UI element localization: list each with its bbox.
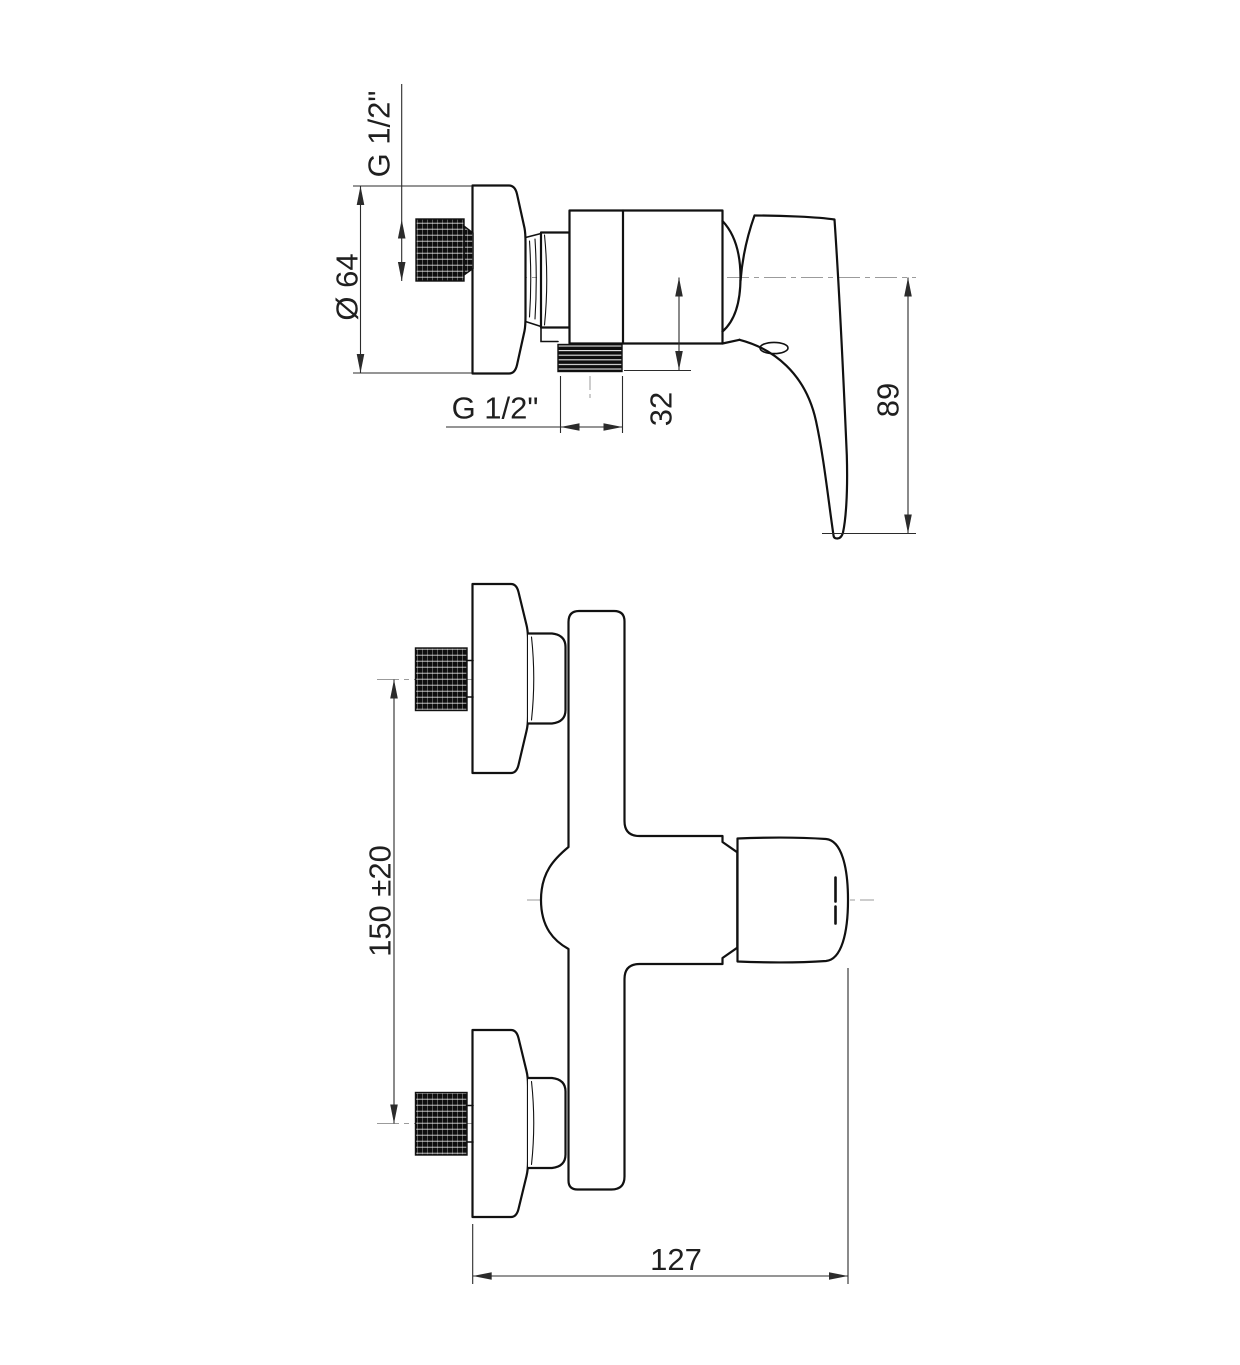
overall-width-label: 127: [650, 1242, 702, 1277]
escutcheon-diameter-label: Ø 64: [330, 253, 365, 320]
drawing-sheet: Ø 64 G 1/2" G 1/2" 32 89: [0, 0, 1240, 1365]
centres-label: 150 ±20: [363, 845, 398, 957]
dimension-inlet-thread: G 1/2": [362, 84, 406, 281]
wall-escutcheon: [473, 186, 526, 374]
lower-knurled-nut: [416, 1093, 468, 1156]
side-view: Ø 64 G 1/2" G 1/2" 32 89: [330, 84, 917, 538]
body-step: [541, 328, 558, 342]
valve-body: [570, 211, 723, 344]
outlet-thread-label: G 1/2": [452, 391, 539, 426]
dimension-handle-drop: 89: [822, 278, 916, 534]
technical-drawing: Ø 64 G 1/2" G 1/2" 32 89: [0, 0, 1240, 1365]
body-lever-link: [723, 340, 740, 344]
handle-drop-label: 89: [871, 383, 906, 417]
dimension-outlet-thread: G 1/2": [446, 376, 623, 433]
cone-stub: [526, 234, 542, 327]
upper-escutcheon: [473, 584, 529, 773]
inlet-thread-stub: [464, 226, 473, 275]
front-view: 150 ±20 127: [363, 584, 875, 1284]
cartridge-dome: [723, 221, 741, 332]
inlet-knurled-nut: [416, 219, 464, 281]
lever-knob-front: [738, 838, 849, 963]
cone-thread-lines: [530, 239, 537, 319]
setscrew-cover: [760, 342, 788, 353]
outlet-offset-label: 32: [644, 392, 679, 426]
valve-body-front: [541, 611, 737, 1190]
lower-escutcheon: [473, 1030, 529, 1217]
lever-handle-side: [740, 216, 848, 539]
upper-knurled-nut: [416, 648, 468, 711]
dimension-centres: 150 ±20: [363, 680, 398, 1124]
outlet-thread: [558, 345, 622, 372]
inlet-thread-label: G 1/2": [362, 91, 397, 178]
